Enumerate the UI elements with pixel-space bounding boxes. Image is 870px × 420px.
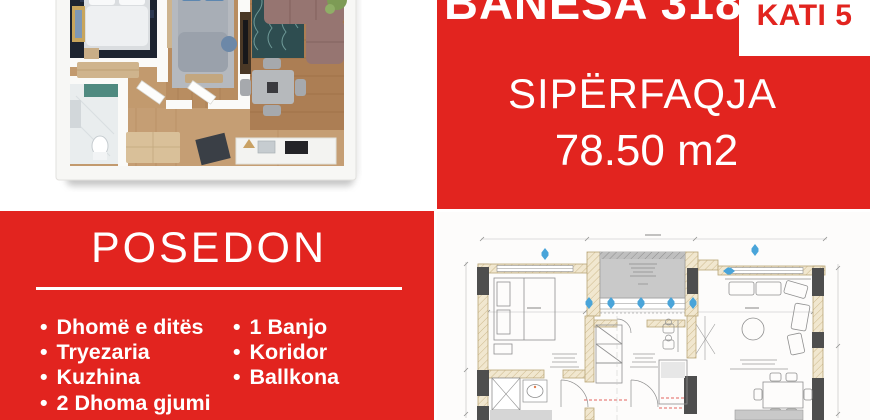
features-title: POSEDON: [0, 224, 426, 273]
bullet-icon: •: [40, 365, 48, 390]
feature-item: •1 Banjo: [233, 315, 339, 340]
floor-badge: KATI 5: [739, 0, 870, 56]
feature-item: •2 Dhoma gjumi: [40, 391, 211, 416]
divider-line: [36, 287, 402, 290]
features-list-left: •Dhomë e ditës •Tryezaria •Kuzhina •2 Dh…: [40, 315, 211, 416]
floor-badge-label: KATI 5: [739, 0, 870, 32]
feature-item-label: Koridor: [250, 340, 328, 364]
unit-info-panel: BANESA 318 KATI 5 SIPËRFAQJA 78.50 m2: [437, 0, 870, 209]
feature-item: •Koridor: [233, 340, 339, 365]
feature-item-label: Tryezaria: [57, 340, 150, 364]
bullet-icon: •: [233, 365, 241, 390]
bullet-icon: •: [233, 315, 241, 340]
feature-item: •Tryezaria: [40, 340, 211, 365]
area-value: 78.50 m2: [437, 126, 863, 176]
bullet-icon: •: [40, 315, 48, 340]
feature-item: •Ballkona: [233, 365, 339, 390]
feature-item-label: Ballkona: [250, 365, 340, 389]
feature-item: •Dhomë e ditës: [40, 315, 211, 340]
floor-plan-3d-render-image: [0, 0, 433, 210]
bullet-icon: •: [233, 340, 241, 365]
feature-item-label: Kuzhina: [57, 365, 141, 389]
feature-item-label: Dhomë e ditës: [57, 315, 204, 339]
features-list-right: •1 Banjo •Koridor •Ballkona: [233, 315, 339, 391]
unit-title: BANESA 318: [444, 0, 742, 30]
features-panel: POSEDON •Dhomë e ditës •Tryezaria •Kuzhi…: [0, 211, 434, 420]
feature-item-label: 1 Banjo: [250, 315, 328, 339]
bullet-icon: •: [40, 340, 48, 365]
render-3d-panel: [0, 0, 433, 210]
feature-item: •Kuzhina: [40, 365, 211, 390]
flyer-canvas: BANESA 318 KATI 5 SIPËRFAQJA 78.50 m2 PO…: [0, 0, 870, 420]
area-label: SIPËRFAQJA: [437, 70, 859, 118]
bullet-icon: •: [40, 391, 48, 416]
feature-item-label: 2 Dhoma gjumi: [57, 391, 211, 415]
plan-2d-panel: [437, 212, 870, 420]
floor-plan-2d-drawing: [437, 212, 870, 420]
